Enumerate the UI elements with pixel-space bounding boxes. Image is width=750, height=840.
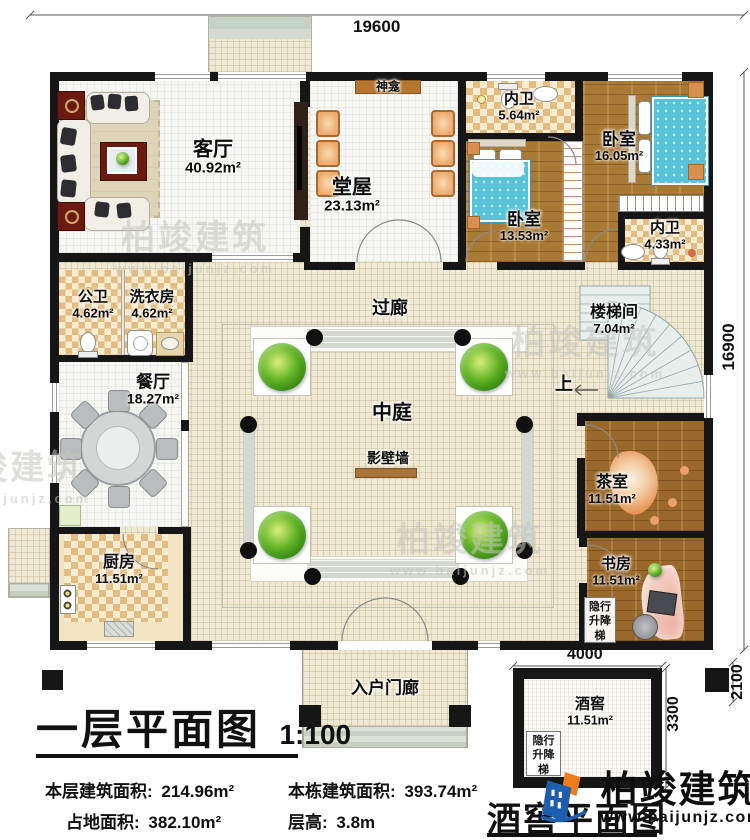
room-label-bedroom-right: 卧室 16.05m² — [595, 130, 643, 164]
room-label-bath-right: 内卫 4.33m² — [644, 220, 685, 251]
room-label-living: 客厅 40.92m² — [185, 138, 241, 177]
room-label-bedroom-left: 卧室 13.53m² — [500, 210, 548, 244]
wall — [181, 420, 189, 431]
toilet — [651, 258, 670, 265]
column — [452, 568, 469, 585]
stat-floor-height: 层高: 3.8m — [288, 808, 375, 833]
plant — [648, 563, 662, 577]
floor-plan-canvas: 神龛 — [0, 0, 750, 840]
wall — [497, 262, 585, 270]
window — [608, 72, 682, 81]
wall — [577, 413, 704, 421]
room-label-tea-room: 茶室 11.51m² — [588, 474, 636, 506]
back-porch — [208, 16, 312, 73]
column — [516, 416, 533, 433]
nightstand — [688, 82, 704, 98]
column — [306, 329, 323, 346]
plant — [258, 343, 306, 391]
ceiling-lamp — [477, 95, 486, 104]
room-label-entry-porch: 入户门廊 — [351, 678, 419, 697]
window — [50, 383, 59, 412]
window — [478, 641, 500, 650]
back-porch-steps — [209, 17, 311, 29]
stat-land-area: 占地面积: 382.10m² — [66, 808, 221, 833]
brand-text-block: 柏竣建筑 www.baijunjz.com — [600, 771, 750, 827]
main-title-scale: 1:100 — [279, 719, 351, 750]
room-label-shrine: 神龛 — [376, 80, 400, 93]
room-label-dining: 餐厅 18.27m² — [127, 373, 179, 408]
chair — [431, 110, 455, 137]
dim-top: 19600 — [353, 17, 400, 37]
stat-floor-area: 本层建筑面积: 214.96m² — [45, 777, 234, 802]
wardrobe-hangers — [618, 195, 704, 212]
dim-cellar-height: 3300 — [665, 696, 683, 732]
sink — [621, 244, 645, 260]
room-label-cellar: 酒窖 11.51m² — [567, 697, 613, 728]
window — [50, 455, 59, 483]
wall — [618, 212, 704, 219]
window — [487, 72, 545, 81]
room-label-kitchen: 厨房 11.51m² — [95, 554, 143, 586]
pier-block — [42, 670, 63, 690]
wall — [575, 81, 583, 141]
room-label-corridor: 过廊 — [372, 298, 408, 318]
bedroom-entry-floor — [583, 195, 618, 262]
fridge — [59, 505, 81, 526]
tv — [297, 126, 302, 190]
room-label-public-bath: 公卫 4.62m² — [72, 289, 113, 320]
dim-cellar-block: 2100 — [729, 664, 747, 700]
room-label-bath-top: 内卫 5.64m² — [498, 91, 539, 122]
wall — [577, 421, 585, 426]
room-label-stairwell: 楼梯间 7.04m² — [590, 304, 638, 336]
brand-logo: 柏竣建筑 www.baijunjz.com — [538, 770, 750, 829]
dim-right: 16900 — [719, 323, 739, 370]
bed-sheet — [472, 162, 524, 177]
wall — [579, 538, 587, 547]
room-label-study: 书房 11.51m² — [592, 556, 640, 587]
sink — [161, 337, 179, 350]
toilet — [78, 351, 98, 358]
chair — [316, 140, 340, 167]
chair — [108, 486, 130, 508]
room-label-hall: 堂屋 23.13m² — [324, 176, 380, 215]
chair — [156, 438, 178, 460]
chair — [431, 170, 455, 197]
wall — [290, 641, 338, 650]
side-porch — [8, 528, 50, 598]
walkway-right — [521, 424, 533, 550]
wall — [432, 641, 478, 650]
brand-url: www.baijunjz.com — [600, 808, 750, 827]
column — [304, 568, 321, 585]
wall — [50, 527, 120, 534]
wall — [50, 253, 212, 262]
plant — [258, 511, 306, 559]
monitor — [647, 590, 678, 616]
plant — [460, 343, 508, 391]
column — [240, 416, 257, 433]
main-title: 一层平面图 — [36, 706, 261, 753]
wall — [185, 262, 193, 362]
brand-name: 柏竣建筑 — [600, 771, 750, 808]
wall — [618, 212, 625, 269]
nightstand — [688, 164, 704, 180]
nightstand — [467, 216, 480, 229]
main-title-block: 一层平面图 1:100 — [36, 696, 351, 757]
wall — [183, 527, 191, 641]
stat-total-area: 本栋建筑面积: 393.74m² — [288, 777, 477, 802]
chair — [431, 140, 455, 167]
label-stairs-up: 上 — [555, 374, 573, 394]
cellar-title-underline — [487, 833, 657, 837]
chair — [316, 110, 340, 137]
window — [87, 641, 155, 650]
toilet-bowl — [80, 332, 96, 353]
screen-wall — [355, 468, 417, 478]
pier-block — [705, 668, 729, 692]
porch-pillar — [449, 705, 471, 727]
brand-logo-icon — [538, 770, 592, 829]
opening — [212, 253, 293, 262]
main-title-underline — [36, 754, 298, 758]
room-label-laundry: 洗衣房 4.62m² — [129, 289, 174, 320]
window — [218, 72, 306, 81]
column — [516, 542, 533, 559]
partition-wall — [181, 362, 189, 527]
window — [212, 641, 290, 650]
back-porch-steps2 — [209, 29, 311, 39]
column — [240, 542, 257, 559]
nightstand — [467, 142, 480, 155]
plant — [116, 152, 129, 165]
wall — [300, 227, 310, 262]
wall — [304, 262, 355, 270]
label-screen-wall: 影壁墙 — [367, 451, 409, 467]
wall — [458, 81, 466, 270]
window — [155, 72, 210, 81]
wall — [50, 355, 193, 362]
closet — [563, 141, 583, 262]
chair — [60, 438, 82, 460]
wall — [577, 531, 704, 538]
toilet — [498, 83, 518, 90]
wall — [577, 458, 585, 531]
walkway-top-steps — [307, 329, 459, 349]
bath-accessory — [688, 249, 696, 257]
partition-wall — [121, 270, 125, 355]
plant — [460, 511, 508, 559]
room-label-atrium: 中庭 — [372, 402, 412, 424]
window — [704, 375, 713, 418]
kitchen-sink — [104, 621, 134, 637]
office-chair — [632, 614, 658, 640]
walkway-bottom-steps — [307, 559, 459, 579]
column — [454, 329, 471, 346]
study-elevator-box: 隐行升降梯 — [584, 597, 616, 643]
wall — [155, 641, 212, 650]
dim-cellar-width: 4000 — [567, 646, 603, 664]
